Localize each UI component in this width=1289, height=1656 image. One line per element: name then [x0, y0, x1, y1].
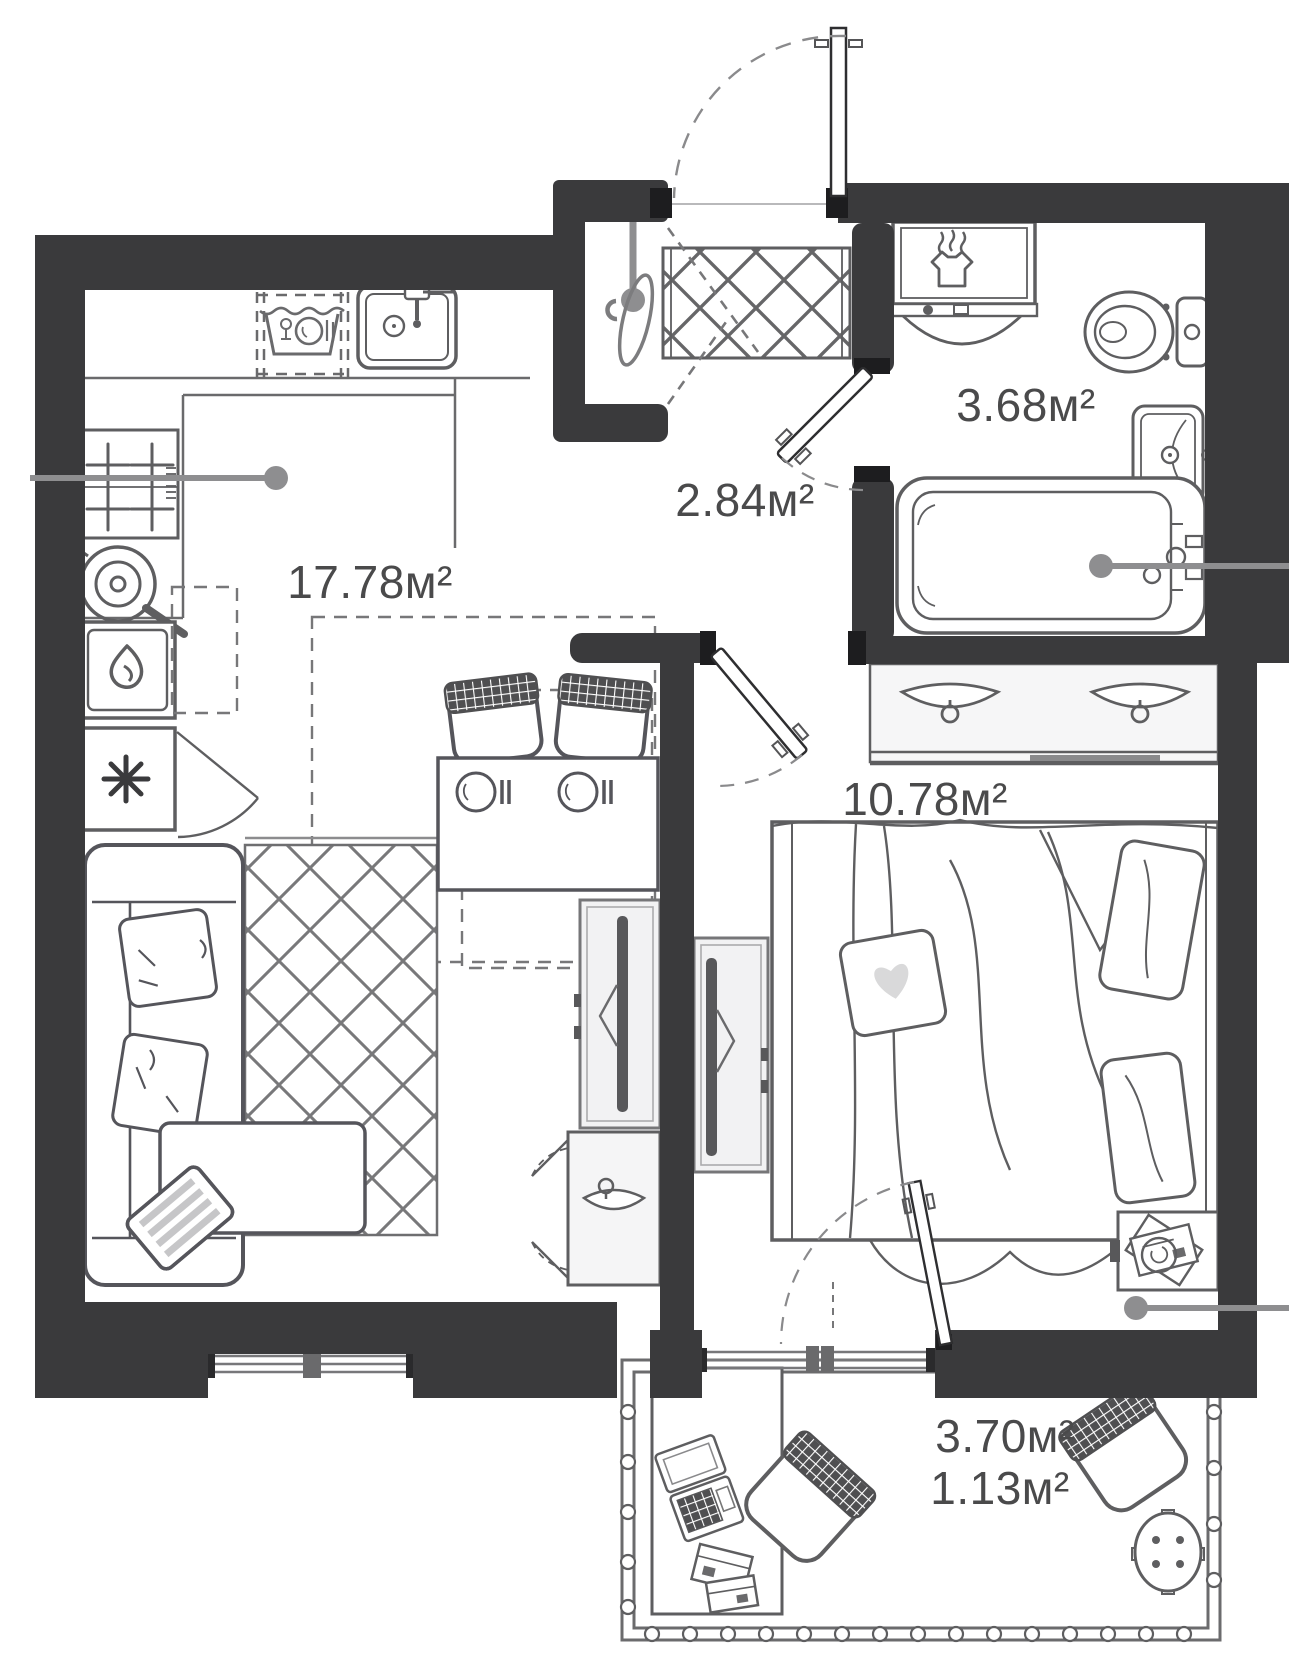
door-swing-arc — [674, 36, 846, 198]
living-room-window — [206, 1350, 415, 1378]
kitchen-sink — [358, 286, 456, 368]
washer-dryer — [885, 222, 1037, 344]
mirror-icon — [613, 272, 659, 367]
balcony — [621, 1360, 1221, 1641]
tv-unit-living — [574, 900, 660, 1128]
bedroom — [694, 664, 1218, 1330]
label-bathroom: 3.68м² — [956, 379, 1095, 431]
toilet — [1085, 292, 1208, 372]
label-balcony-area-reduced: 1.13м² — [930, 1462, 1069, 1514]
dishwasher — [257, 292, 348, 378]
label-hallway: 2.84м² — [675, 474, 814, 526]
tv-icon — [706, 958, 717, 1156]
label-bedroom: 10.78м² — [842, 773, 1008, 825]
oven — [80, 622, 175, 718]
hanger-closet — [532, 1132, 660, 1285]
balcony-door-window — [698, 1346, 935, 1372]
office-chair — [1056, 1379, 1196, 1519]
bed-pillow — [1100, 1052, 1197, 1205]
bedroom-wardrobe — [870, 664, 1218, 764]
stove — [82, 430, 178, 538]
tv-unit-bedroom — [694, 938, 768, 1172]
label-balcony-area: 3.70м² — [935, 1410, 1074, 1462]
floor-plan-svg: 17.78м² 2.84м² 3.68м² 10.78м² 3.70м² 1.1… — [0, 0, 1289, 1656]
door-swing-arc — [716, 755, 802, 786]
entry-door — [674, 28, 862, 198]
label-kitchen-living: 17.78м² — [287, 556, 453, 608]
tv-icon — [617, 916, 628, 1112]
dining-chair — [552, 673, 652, 764]
floor-plan-page: 17.78м² 2.84м² 3.68м² 10.78м² 3.70м² 1.1… — [0, 0, 1289, 1656]
living-room-door — [703, 641, 815, 786]
hall-wardrobe — [663, 228, 869, 404]
dining-chair — [444, 673, 545, 766]
heart-pillow — [839, 929, 948, 1038]
round-stool — [1132, 1510, 1204, 1594]
dining-table — [438, 758, 658, 890]
hook-icon — [607, 301, 617, 319]
snowflake-icon — [104, 757, 148, 801]
refrigerator — [78, 728, 258, 837]
nightstand — [1110, 1212, 1218, 1290]
bathtub — [897, 478, 1205, 633]
